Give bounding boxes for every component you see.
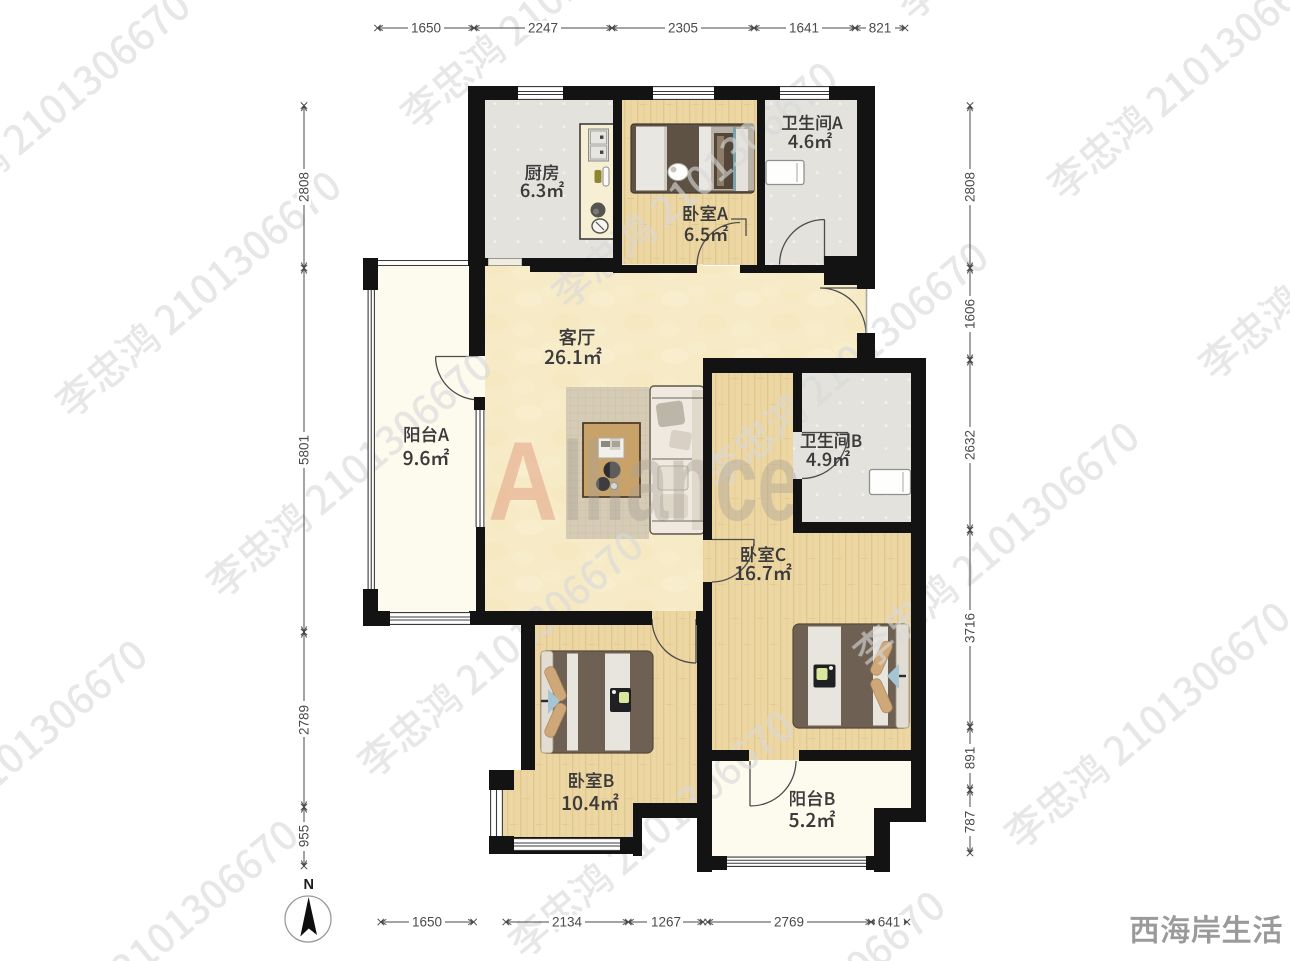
svg-text:2247: 2247 [528,21,558,36]
svg-text:5801: 5801 [297,435,312,465]
svg-text:1606: 1606 [963,299,978,329]
svg-text:A: A [488,419,558,544]
svg-text:1650: 1650 [411,21,441,36]
svg-text:2632: 2632 [963,430,978,460]
svg-text:641: 641 [878,915,901,930]
svg-text:1650: 1650 [412,915,442,930]
svg-text:lliance: lliance [562,419,800,544]
svg-text:N: N [303,877,313,893]
svg-text:3716: 3716 [963,613,978,643]
svg-text:2769: 2769 [774,915,804,930]
svg-text:821: 821 [869,21,892,36]
svg-text:2305: 2305 [668,21,698,36]
svg-text:2808: 2808 [297,172,312,202]
svg-text:955: 955 [297,825,312,848]
svg-text:787: 787 [963,811,978,834]
svg-text:1641: 1641 [789,21,819,36]
svg-text:2808: 2808 [963,172,978,202]
svg-text:2789: 2789 [297,705,312,735]
svg-text:2134: 2134 [552,915,583,930]
svg-text:891: 891 [963,747,978,770]
svg-text:1267: 1267 [651,915,681,930]
